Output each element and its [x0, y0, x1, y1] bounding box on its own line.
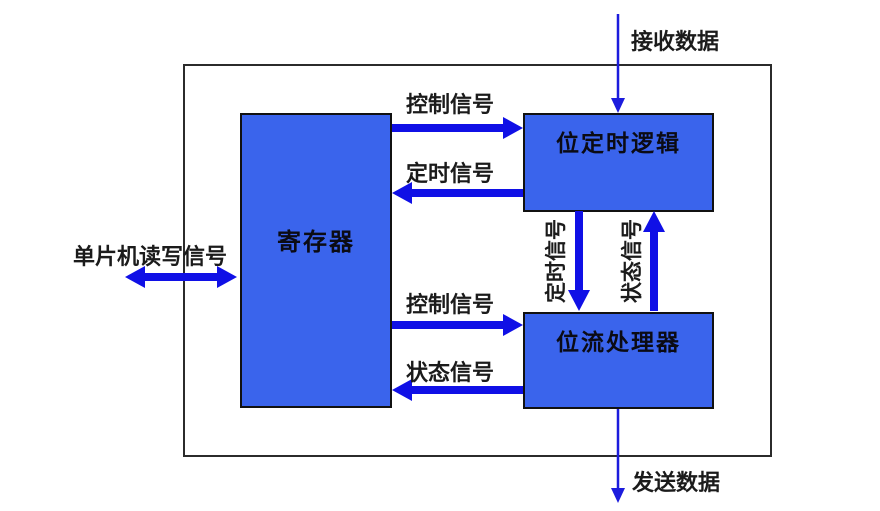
control-signal-top-arrow: [392, 117, 523, 139]
status-signal-bottom-label: 状态信号: [403, 355, 497, 387]
control-signal-top-label: 控制信号: [403, 87, 497, 119]
send-data-arrow: [611, 409, 625, 503]
status-signal-vertical-label: 状态信号: [616, 211, 640, 311]
can-controller-block-diagram: 寄存器 位定时逻辑 位流处理器: [0, 0, 880, 511]
send-data-label: 发送数据: [632, 465, 720, 497]
control-signal-bottom-label: 控制信号: [403, 287, 497, 319]
mcu-read-write-label: 单片机读写信号: [73, 239, 227, 271]
receive-data-label: 接收数据: [631, 24, 719, 56]
status-signal-vertical-arrow: [643, 211, 665, 311]
timing-signal-vertical-label: 定时信号: [540, 211, 564, 311]
receive-data-arrow: [611, 14, 625, 113]
timing-signal-top-label: 定时信号: [403, 156, 497, 188]
timing-signal-vertical-arrow: [568, 211, 590, 311]
